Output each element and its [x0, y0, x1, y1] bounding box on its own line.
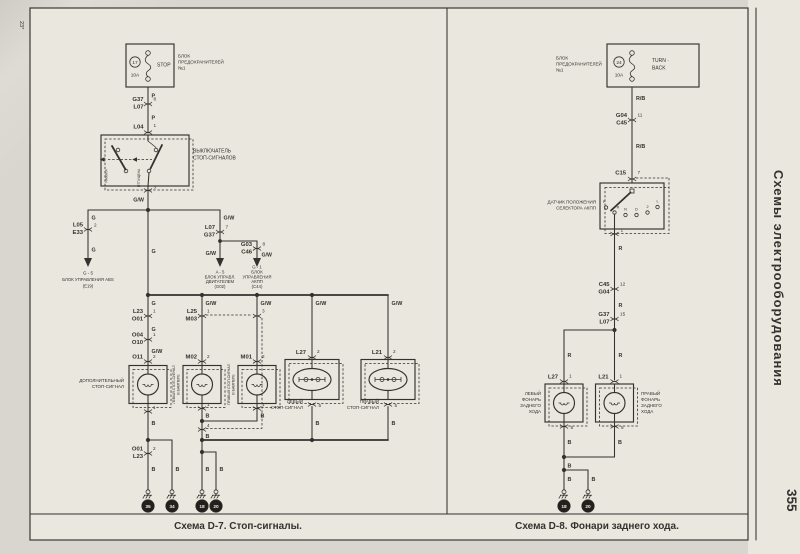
ground-point-number: 34 [169, 504, 175, 510]
component-id: L27 [548, 375, 559, 381]
lamp-label: ДОПОЛНИТЕЛЬНЫЙ [79, 376, 124, 383]
lamp-label-vertical: В БАМПЕРЕ [177, 374, 181, 395]
sensor-label: ДАТЧИК ПОЛОЖЕНИЯ [548, 200, 596, 205]
offpage-code: (C44) [252, 284, 263, 289]
wire-color: G [152, 301, 156, 307]
connector-code: M03 [186, 317, 198, 323]
connector-code: G04 [616, 113, 628, 119]
wire-color: B [568, 464, 572, 470]
pin-number: 1 [153, 405, 156, 410]
ground-point-number: 18 [199, 504, 205, 510]
lamp-label: ПРАВЫЙ [641, 389, 660, 396]
fuse-rating: 10A [131, 73, 140, 79]
fusebox-label: №1 [178, 66, 186, 71]
wire-color: R [568, 353, 572, 359]
pin-number: 2 [153, 354, 156, 359]
lamp-label: ЛЕВЫЙ [525, 389, 541, 396]
pin-number: 1 [153, 332, 156, 337]
pin-number: 1 [621, 228, 624, 233]
wire-color: G/W [316, 301, 328, 307]
lamp-label: ХОДА [641, 409, 653, 414]
fuse-number: 17 [132, 60, 138, 66]
wire-color: R [619, 246, 623, 252]
wire-color: G/W [392, 301, 404, 307]
fusebox-label: ПРЕДОХРАНИТЕЛЕЙ [178, 58, 224, 65]
wire-color: B [261, 414, 265, 420]
wire-color: G/W [133, 198, 145, 204]
pin-number: 7 [226, 225, 229, 230]
wire-color: B [152, 421, 156, 427]
selector-position: 2 [646, 205, 648, 209]
wire-color: B [568, 440, 572, 446]
component-id: L27 [296, 350, 307, 356]
connector-code: O01 [132, 447, 144, 453]
print-corner-mark: 23* [18, 21, 24, 30]
ground-point-number: 20 [213, 504, 219, 510]
connector-code: C45 [599, 282, 611, 288]
pin-number: 1 [207, 402, 210, 407]
connector-code: G04 [598, 290, 610, 296]
component-id: L21 [372, 350, 383, 356]
ground-point-number: 18 [561, 504, 567, 510]
offpage-target: БЛОК УПРАВЛЕНИЯ ABS [62, 277, 114, 282]
fusebox-label: БЛОК [178, 54, 190, 59]
pin-number: 5 [621, 425, 624, 430]
pin-number: 2 [153, 446, 156, 451]
scheme-d8-caption: Схема D-8. Фонари заднего хода. [515, 521, 679, 532]
lamp-label: СТОП-СИГНАЛ [92, 384, 124, 389]
selector-position: N [624, 208, 627, 212]
wire-color: G/W [262, 253, 272, 259]
lamp-label-vertical: ПРАВЫЙ СТОП-СИГНАЛ [227, 363, 231, 405]
paper-area [30, 8, 748, 540]
connector-code: L25 [187, 309, 198, 315]
lamp-label: ХОДА [529, 409, 541, 414]
pin-number: 2 [94, 223, 97, 228]
connector-code: C46 [241, 250, 253, 256]
fusebox-label: ПРЕДОХРАНИТЕЛЕЙ [556, 60, 602, 67]
fuse-name: TURN · [652, 58, 669, 64]
sensor-label: СЕЛЕКТОРА АКПП [556, 206, 596, 211]
wire-color: R/B [636, 96, 645, 102]
switch-state-label: НАЖАТА [105, 169, 109, 183]
selector-position: D [635, 208, 638, 212]
wire-color: B [316, 421, 320, 427]
connector-code: L05 [73, 223, 84, 229]
fuse-rating: 10A [615, 73, 624, 79]
component-id: L21 [598, 375, 609, 381]
wire-color: B [152, 467, 156, 473]
wire-color: G/W [206, 301, 218, 307]
wire-color: B [392, 421, 396, 427]
wire-color: R/B [636, 144, 645, 150]
wire-color: B [592, 477, 596, 483]
schematic-canvas: 17 10A STOP БЛОК ПРЕДОХРАНИТЕЛЕЙ №1 P G3… [0, 0, 800, 554]
connector-code: O01 [132, 317, 144, 323]
wire-color: B [220, 467, 224, 473]
wire-color: B [206, 467, 210, 473]
offpage-code: (G02) [215, 284, 227, 289]
lamp-label: СТОП-СИГНАЛ [347, 405, 379, 410]
component-id: M02 [186, 355, 198, 361]
offpage-ref: G - 5 [83, 271, 93, 276]
wire-color: B [568, 477, 572, 483]
lamp-label: ФОНАРЬ [522, 397, 541, 402]
page-number: 355 [784, 489, 799, 512]
lamp-label: ЛЕВЫЙ [287, 397, 303, 404]
pin-number: 2 [317, 349, 320, 354]
connector-code: G37 [598, 312, 610, 318]
wire-color: G [92, 248, 96, 254]
wire-color: G/W [224, 216, 236, 222]
connector-code: L07 [205, 225, 216, 231]
fusebox-label: №1 [556, 68, 564, 73]
connector-code: L07 [133, 105, 144, 111]
lamp-label-vertical: В БАМПЕРЕ [232, 374, 236, 395]
pin-number: 8 [154, 97, 157, 102]
lamp-label-vertical: ЛЕВЫЙ СТОП-СИГНАЛ [172, 365, 176, 404]
component-id: M01 [241, 355, 253, 361]
connector-code: C15 [615, 171, 627, 177]
connector-code: E33 [73, 230, 84, 236]
switch-name: СТОП-СИГНАЛОВ [193, 156, 237, 162]
connector-code: L07 [599, 320, 610, 326]
pin-number: 1 [207, 309, 210, 314]
ground-point-number: 35 [145, 504, 151, 510]
lamp-label: ЗАДНЕГО [641, 403, 662, 408]
pin-number: 4 [207, 423, 210, 428]
pin-number: 2 [262, 354, 265, 359]
lamp-label: СТОП-СИГНАЛ [271, 405, 303, 410]
chapter-sidebar-title: Схемы электрооборудования [771, 170, 786, 387]
fusebox-label: БЛОК [556, 56, 568, 61]
wire-color: R [619, 353, 623, 359]
pin-number: 2 [393, 349, 396, 354]
pin-number: 8 [263, 242, 266, 247]
connector-code: L23 [133, 454, 144, 460]
wire-color: R [619, 303, 623, 309]
wire-color: G [92, 216, 96, 222]
pin-number: 15 [620, 312, 626, 317]
connector-code: L23 [133, 309, 144, 315]
pin-number: 1 [262, 402, 265, 407]
connector-code: C45 [616, 121, 628, 127]
switch-state-label: ОТПУЩЕНА [137, 168, 141, 187]
switch-name: ВЫКЛЮЧАТЕЛЬ [193, 149, 232, 155]
scanned-manual-page: 17 10A STOP БЛОК ПРЕДОХРАНИТЕЛЕЙ №1 P G3… [0, 0, 800, 554]
pin-number: 7 [638, 170, 641, 175]
pin-number: 5 [571, 425, 574, 430]
pin-number: 1 [153, 309, 156, 314]
lamp-label: ЗАДНЕГО [520, 403, 541, 408]
pin-number: 12 [620, 282, 626, 287]
wire-color: B [618, 440, 622, 446]
pin-number: 1 [569, 374, 572, 379]
connector-code: G37 [132, 97, 144, 103]
pin-number: 3 [262, 309, 265, 314]
lamp-label: ПРАВЫЙ [360, 397, 379, 404]
connector-code: G37 [204, 233, 216, 239]
connector-code: L04 [133, 125, 144, 131]
scheme-d7-caption: Схема D-7. Стоп-сигналы. [174, 521, 302, 532]
wire-color: G [152, 249, 156, 255]
connector-code: G03 [241, 242, 253, 248]
ground-point-number: 20 [585, 504, 591, 510]
pin-number: 5 [319, 403, 322, 408]
wire-color: B [176, 467, 180, 473]
pin-number: 3 [154, 185, 157, 190]
wire-color: B [206, 414, 210, 420]
pin-number: 2 [207, 354, 210, 359]
component-id: O11 [132, 355, 144, 361]
connector-code: O04 [132, 333, 144, 339]
fuse-number: 24 [616, 60, 622, 66]
connector-code: O10 [132, 340, 144, 346]
pin-number: 1 [154, 123, 157, 128]
selector-position: L [656, 200, 658, 204]
offpage-code: (E19) [83, 284, 94, 289]
wire-color: P [152, 116, 156, 122]
wire-color: G/W [206, 251, 216, 257]
selector-position: P [603, 200, 606, 204]
pin-number: 1 [620, 374, 623, 379]
selector-position: R [617, 206, 620, 210]
wire-color: G/W [261, 301, 273, 307]
pin-number: 5 [395, 403, 398, 408]
fuse-name: STOP [157, 63, 171, 69]
pin-number: 11 [638, 113, 643, 118]
fuse-name: BACK [652, 66, 666, 72]
lamp-label: ФОНАРЬ [641, 397, 660, 402]
